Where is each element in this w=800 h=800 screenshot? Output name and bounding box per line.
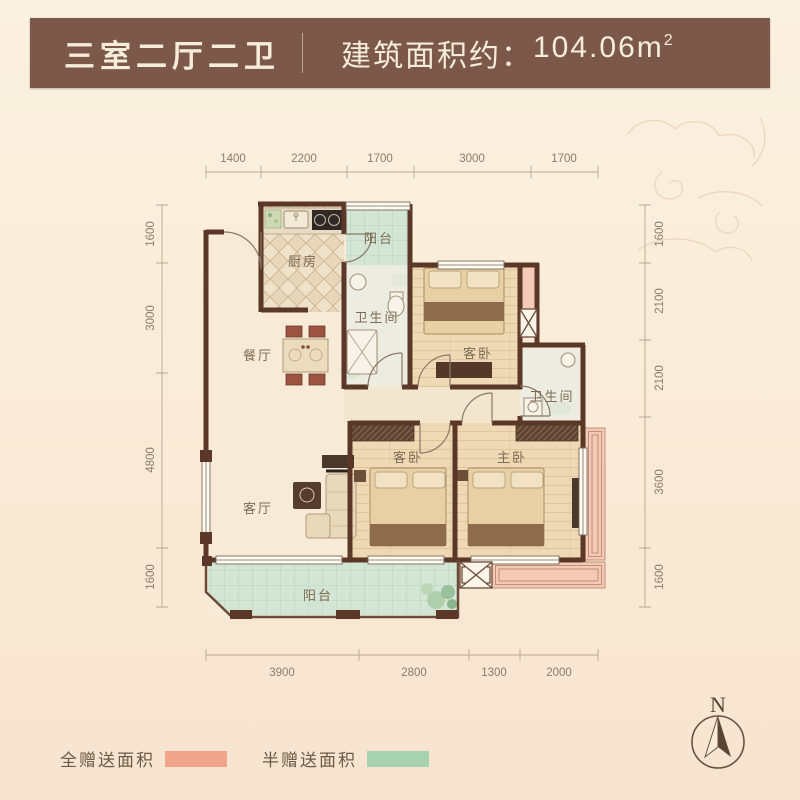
bed-guest-bottom-window [368, 556, 444, 564]
compass-needle-dark [718, 716, 731, 757]
legend-full-gift-swatch [165, 751, 227, 767]
dim-top-3: 3000 [459, 153, 485, 165]
shaft-top [520, 309, 537, 337]
hallway-floor [344, 387, 520, 423]
legend-full-gift-label: 全赠送面积 [60, 746, 155, 771]
dim-right-0: 1600 [654, 221, 666, 247]
dim-bottom-3: 2000 [546, 667, 572, 679]
living-bay-window [200, 450, 212, 544]
label-living: 客厅 [243, 501, 273, 516]
label-balcony-top: 阳台 [364, 231, 394, 246]
master-east-window [579, 448, 587, 535]
compass: N [692, 692, 744, 768]
dim-right-1: 2100 [654, 288, 666, 314]
compass-needle-light [705, 716, 718, 757]
legend-half-gift-label: 半赠送面积 [262, 746, 357, 771]
dim-right-3: 3600 [654, 469, 666, 495]
gift-strip-top [520, 267, 537, 309]
dim-right-2: 2100 [654, 365, 666, 391]
legend-half-gift-swatch [367, 751, 429, 767]
legend-full-gift: 全赠送面积 [60, 746, 227, 771]
dim-bottom-1: 2800 [401, 667, 427, 679]
dim-left-1: 3000 [145, 305, 157, 331]
balcony-top-window [346, 202, 410, 210]
dim-bottom-0: 3900 [269, 667, 295, 679]
label-kitchen: 厨房 [288, 254, 318, 269]
bed-guest-top-window [438, 261, 504, 269]
dim-top-0: 1400 [220, 153, 246, 165]
legend-half-gift: 半赠送面积 [262, 746, 429, 771]
dim-bottom-2: 1300 [481, 667, 507, 679]
label-bed-guest-bottom: 客卧 [393, 450, 423, 465]
floors [206, 206, 605, 617]
dim-top-2: 1700 [367, 153, 393, 165]
label-bed-guest-top: 客卧 [463, 346, 493, 361]
shaft-bottom [460, 562, 492, 588]
floorplan-page: 三室二厅二卫 建筑面积约： 104.06m 2 [0, 0, 800, 800]
cloud-decoration [628, 118, 765, 261]
label-balcony-bottom: 阳台 [303, 588, 333, 603]
living-south-window [216, 556, 342, 564]
label-bed-master: 主卧 [497, 450, 527, 465]
label-dining: 餐厅 [243, 348, 273, 363]
dim-left-0: 1600 [145, 221, 157, 247]
label-bath-top: 卫生间 [354, 310, 399, 325]
floor-plan: 厨房 阳台 卫生间 客卧 卫生间 餐厅 客厅 客卧 主卧 阳台 1400 220… [0, 0, 800, 800]
gift-strip-right [585, 428, 605, 560]
dim-left-2: 4800 [145, 447, 157, 473]
dim-top-4: 1700 [551, 153, 577, 165]
kitchen-furniture [263, 208, 344, 234]
label-bath-right: 卫生间 [529, 389, 574, 404]
dim-top-1: 2200 [291, 153, 317, 165]
dim-left-3: 1600 [145, 564, 157, 590]
compass-north-label: N [710, 692, 726, 717]
dim-right-4: 1600 [654, 564, 666, 590]
